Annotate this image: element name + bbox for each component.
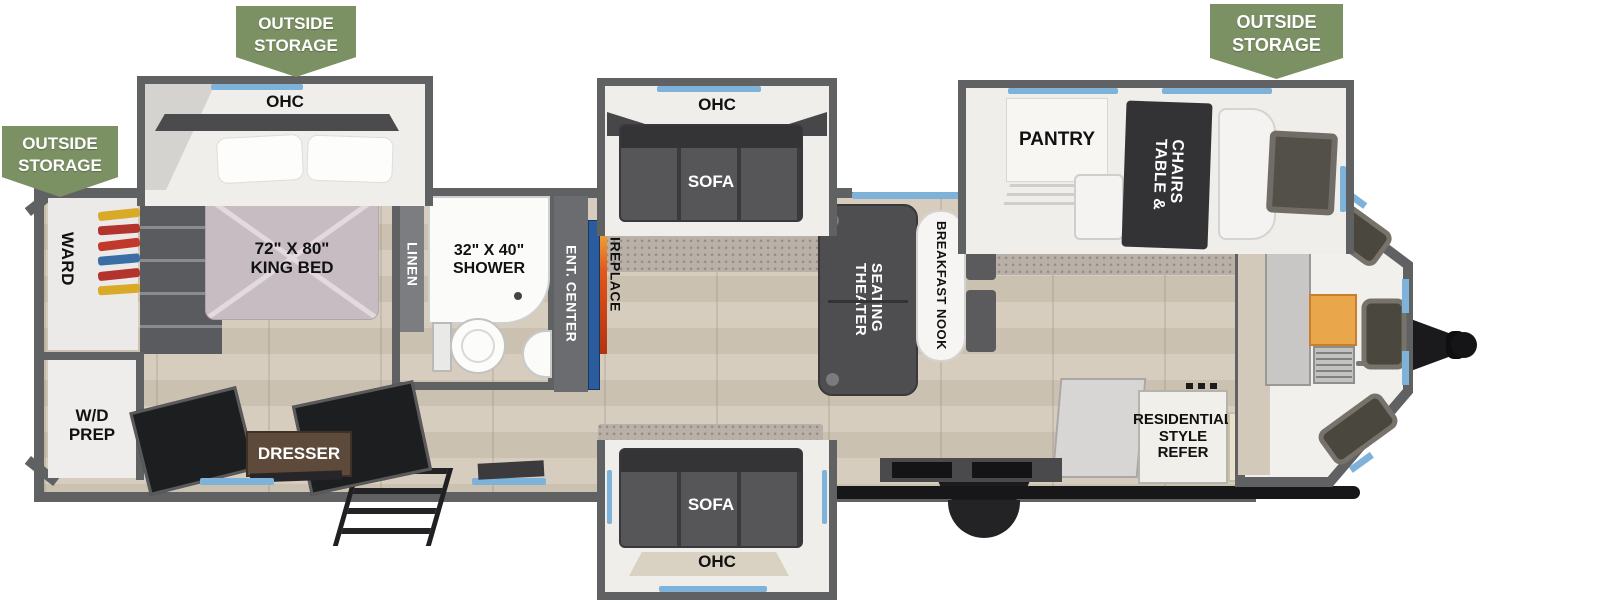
refer-label: RESIDENTIAL STYLE REFER (1133, 412, 1233, 462)
breakfast-nook-label: BREAKFAST NOOK (934, 221, 948, 350)
banner-text: OUTSIDE STORAGE (1232, 11, 1321, 79)
sofa-bottom: SOFA (619, 448, 803, 548)
bath-wall-left (392, 194, 400, 390)
sofa-slideout-bottom: SOFA OHC (597, 440, 837, 600)
floorplan-diagram: OUTSIDE STORAGE OUTSIDE STORAGE OUTSIDE … (0, 0, 1600, 603)
hanging-clothes (98, 206, 140, 344)
nook-chair (966, 290, 996, 352)
ward-label: WARD (58, 232, 76, 322)
outside-storage-banner-bedroom: OUTSIDE STORAGE (236, 6, 356, 77)
sofa-back (621, 450, 801, 472)
window (822, 470, 827, 524)
dining-slideout: PANTRY TABLE & CHAIRS (958, 80, 1354, 254)
window (607, 470, 612, 524)
living-ohc-label: OHC (605, 95, 829, 114)
sofa-top: SOFA (619, 124, 803, 222)
shower-drain (514, 292, 522, 300)
linen-label: LINEN (405, 242, 420, 287)
sofa-top-label: SOFA (688, 172, 734, 191)
sofa-bottom-label: SOFA (688, 495, 734, 514)
king-bed-label: 72" X 80" KING BED (250, 239, 333, 277)
overhead-cabinet (155, 114, 399, 131)
front-entry-step (948, 500, 1020, 538)
banner-text: OUTSIDE STORAGE (254, 13, 338, 77)
window (1162, 88, 1272, 94)
bath-wall-bottom (392, 382, 568, 390)
outside-kitchen-inset (972, 462, 1032, 478)
window (659, 586, 767, 592)
seat-divider (828, 300, 908, 303)
wd-room-wall-top (44, 352, 144, 360)
outside-storage-banner-rear: OUTSIDE STORAGE (2, 126, 118, 197)
bottom-ohc-label: OHC (605, 552, 829, 571)
cupholder-icon (826, 373, 839, 386)
awning-rail (826, 486, 1360, 499)
shower-label: 32" X 40" SHOWER (453, 242, 525, 278)
window (657, 86, 761, 92)
slide-window-dark (1266, 130, 1338, 215)
toilet (450, 318, 506, 374)
dresser-label: DRESSER (258, 444, 340, 463)
pantry-label: PANTRY (1019, 129, 1095, 150)
bed-pillow (216, 134, 304, 184)
ent-center-label: ENT. CENTER (564, 245, 579, 342)
entertainment-center: ENT. CENTER (554, 196, 588, 392)
refrigerator: RESIDENTIAL STYLE REFER (1138, 390, 1228, 484)
tv-screen (588, 220, 600, 390)
outside-storage-banner-front: OUTSIDE STORAGE (1210, 4, 1343, 79)
fireplace-label: FIREPLACE (608, 228, 623, 378)
cutting-board (1310, 295, 1356, 345)
king-bed: 72" X 80" KING BED (205, 196, 379, 320)
bedroom-slideout: OHC (137, 76, 433, 206)
outside-kitchen-inset (892, 462, 952, 478)
window (1340, 166, 1346, 212)
fireplace-flame-strip (600, 226, 607, 354)
bedroom-ohc-label: OHC (145, 92, 425, 111)
pantry: PANTRY (1006, 98, 1108, 182)
window (1008, 88, 1118, 94)
dining-chair (1074, 174, 1124, 240)
outside-kitchen-counter (880, 458, 1062, 482)
wd-prep-label: W/D PREP (50, 406, 134, 444)
shower: 32" X 40" SHOWER (428, 196, 550, 324)
window (200, 478, 274, 485)
bed-pillow (306, 135, 394, 184)
linen-closet: LINEN (400, 196, 424, 332)
dining-table: TABLE & CHAIRS (1121, 101, 1212, 250)
window (211, 84, 303, 90)
sofa-slideout-top: OHC SOFA (597, 78, 837, 236)
cap-window-front (1364, 301, 1404, 367)
sofa-back (621, 126, 801, 148)
table-chairs-label: TABLE & CHAIRS (1149, 139, 1185, 212)
hitch-ball-icon (1451, 332, 1477, 358)
toilet-tank (432, 322, 452, 372)
cooktop-knobs-icon (1186, 383, 1220, 389)
